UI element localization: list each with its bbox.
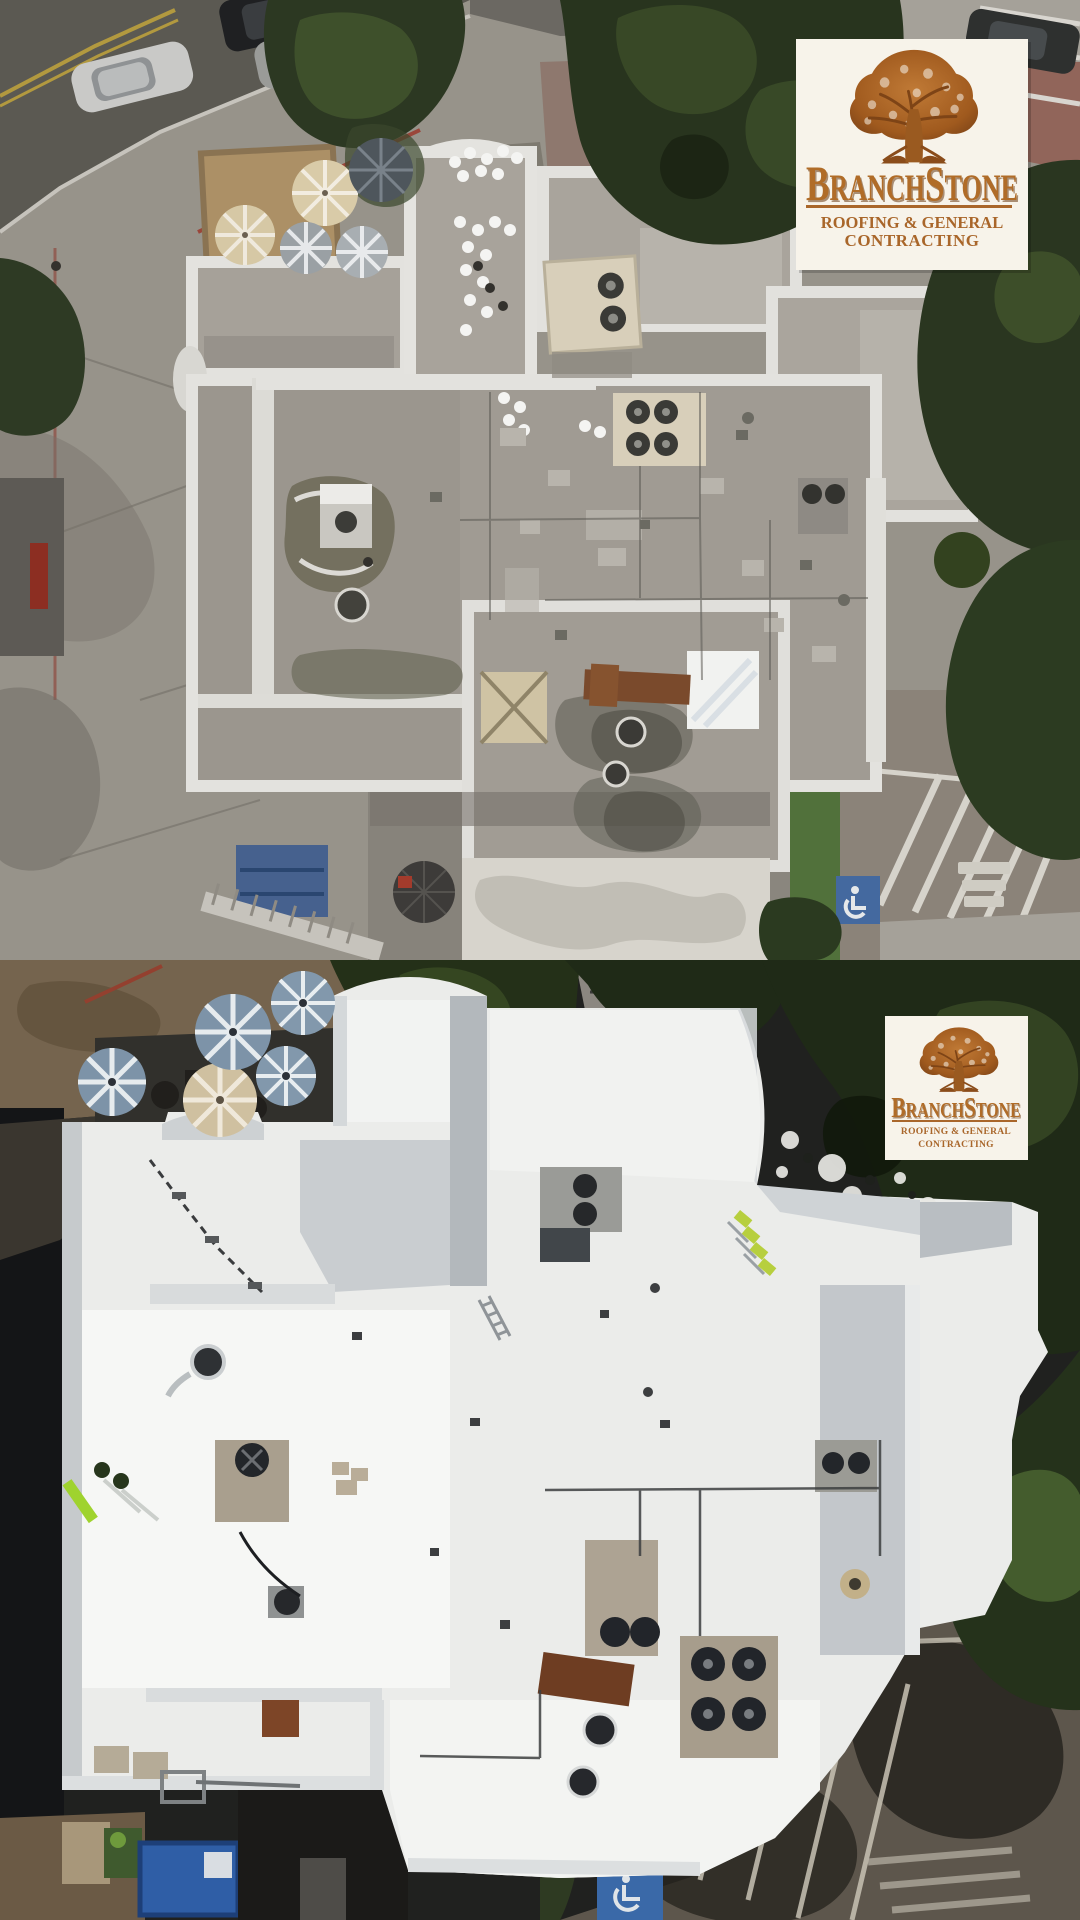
svg-text:CONTRACTING: CONTRACTING bbox=[845, 231, 980, 250]
svg-text:CONTRACTING: CONTRACTING bbox=[918, 1140, 994, 1150]
svg-text:ROOFING & GENERAL: ROOFING & GENERAL bbox=[821, 213, 1003, 232]
svg-text:ROOFING & GENERAL: ROOFING & GENERAL bbox=[901, 1127, 1011, 1137]
